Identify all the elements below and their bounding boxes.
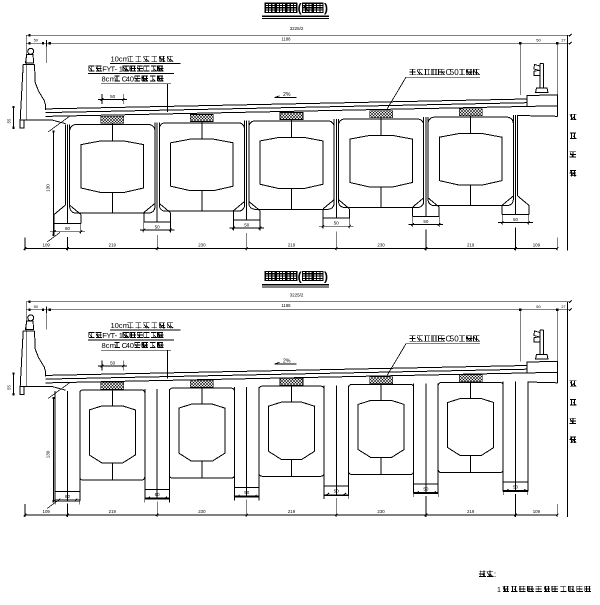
svg-text:50: 50 (155, 492, 161, 497)
svg-text:1188: 1188 (281, 303, 291, 308)
svg-text:50: 50 (244, 490, 250, 495)
svg-text:50: 50 (155, 224, 161, 229)
svg-text:0: 0 (454, 68, 459, 77)
svg-text:230: 230 (377, 243, 385, 248)
svg-text:109: 109 (533, 243, 541, 248)
svg-text:55: 55 (7, 385, 12, 390)
svg-text:1: 1 (119, 64, 123, 73)
svg-text:219: 219 (109, 243, 117, 248)
svg-text:50: 50 (34, 304, 39, 309)
svg-text:(: ( (298, 1, 302, 15)
svg-text:50: 50 (110, 361, 116, 366)
svg-text:50: 50 (513, 485, 519, 490)
svg-text:50: 50 (423, 219, 429, 224)
svg-text:2%: 2% (283, 92, 291, 98)
svg-text:55: 55 (7, 118, 12, 123)
svg-text:50: 50 (34, 38, 39, 43)
svg-text:27: 27 (561, 38, 565, 42)
svg-text:): ) (324, 270, 328, 284)
svg-text:109: 109 (43, 243, 51, 248)
svg-text:219: 219 (109, 509, 117, 514)
svg-text:230: 230 (198, 243, 206, 248)
svg-text:0: 0 (130, 74, 134, 83)
svg-text:109: 109 (533, 509, 541, 514)
svg-text:1: 1 (119, 331, 123, 340)
svg-text:50: 50 (536, 304, 541, 309)
svg-text:): ) (324, 1, 328, 15)
svg-text:219: 219 (467, 243, 475, 248)
svg-text:130: 130 (46, 184, 51, 192)
svg-text:230: 230 (377, 509, 385, 514)
svg-text:3225/2: 3225/2 (290, 26, 304, 31)
svg-text::: : (494, 569, 496, 579)
svg-text:0: 0 (454, 334, 459, 343)
svg-text:219: 219 (288, 243, 296, 248)
svg-text:27: 27 (561, 305, 565, 309)
svg-text:50: 50 (244, 223, 250, 228)
svg-text:0: 0 (130, 341, 134, 350)
svg-text:2%: 2% (283, 359, 291, 365)
svg-text:219: 219 (288, 509, 296, 514)
svg-text:3225/2: 3225/2 (290, 293, 304, 298)
svg-text:1188: 1188 (281, 37, 291, 42)
svg-text:50: 50 (334, 221, 340, 226)
svg-text:80: 80 (65, 226, 71, 231)
svg-text:50: 50 (513, 217, 519, 222)
svg-text:1: 1 (497, 587, 501, 594)
svg-text:50: 50 (536, 37, 541, 42)
svg-text:50: 50 (334, 488, 340, 493)
svg-text:219: 219 (467, 509, 475, 514)
svg-text:50: 50 (423, 487, 429, 492)
svg-text:80: 80 (65, 494, 71, 499)
svg-text:50: 50 (110, 94, 116, 99)
svg-text:109: 109 (43, 509, 51, 514)
svg-text:230: 230 (198, 509, 206, 514)
svg-text:130: 130 (46, 450, 51, 458)
svg-text:(: ( (298, 270, 302, 284)
